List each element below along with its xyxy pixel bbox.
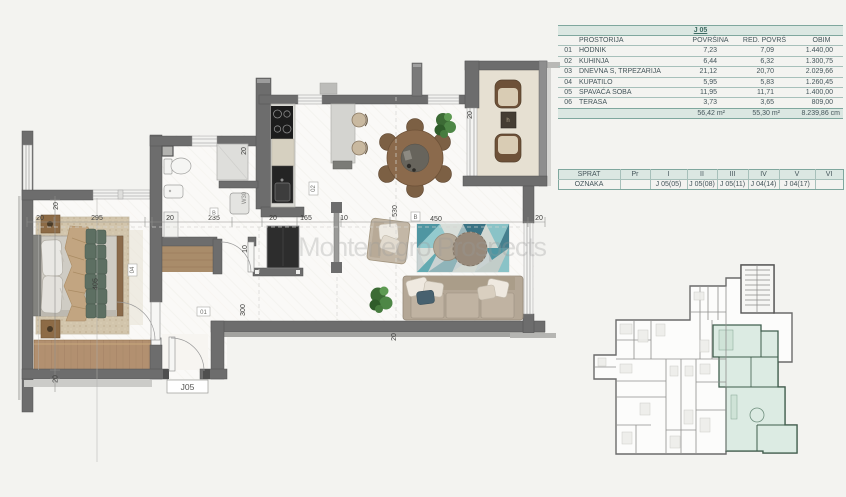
svg-text:450: 450 xyxy=(430,216,442,223)
svg-text:h: h xyxy=(506,118,509,124)
svg-text:300: 300 xyxy=(240,304,247,316)
svg-text:20: 20 xyxy=(36,215,44,222)
svg-text:B: B xyxy=(212,211,216,217)
svg-text:20: 20 xyxy=(391,333,398,341)
svg-text:20: 20 xyxy=(269,215,277,222)
svg-text:20: 20 xyxy=(241,147,248,155)
svg-text:20: 20 xyxy=(535,215,543,222)
svg-text:530: 530 xyxy=(392,205,399,217)
svg-text:Montenegro Prospects: Montenegro Prospects xyxy=(298,232,546,262)
svg-text:405: 405 xyxy=(93,278,100,290)
svg-text:20: 20 xyxy=(467,111,474,119)
svg-text:20: 20 xyxy=(166,215,174,222)
svg-text:B: B xyxy=(413,215,417,221)
svg-text:02: 02 xyxy=(311,185,317,192)
svg-text:165: 165 xyxy=(300,215,312,222)
svg-text:01: 01 xyxy=(200,310,207,316)
svg-text:04: 04 xyxy=(130,266,136,273)
svg-text:J05: J05 xyxy=(181,382,195,392)
svg-text:W30: W30 xyxy=(242,191,248,204)
svg-text:20: 20 xyxy=(53,375,60,383)
svg-text:10: 10 xyxy=(242,245,249,253)
svg-text:10: 10 xyxy=(340,215,348,222)
svg-text:20: 20 xyxy=(53,202,60,210)
